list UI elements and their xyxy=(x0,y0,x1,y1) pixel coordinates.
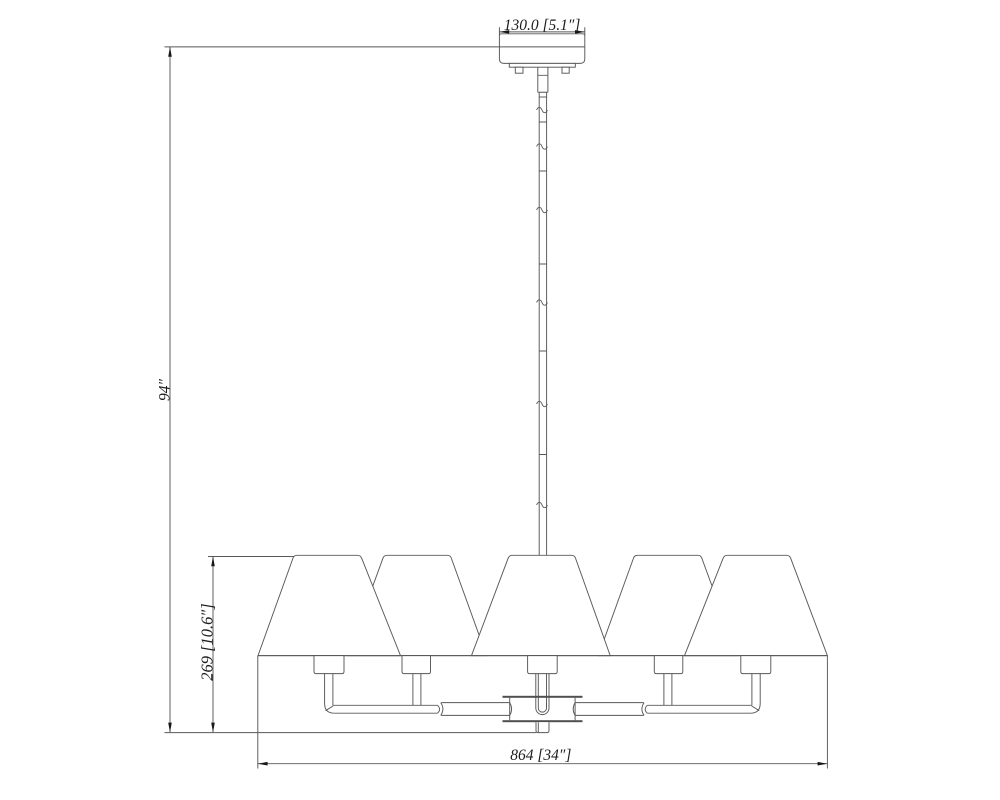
svg-text:94″: 94″ xyxy=(156,378,173,401)
svg-text:269 [10.6″]: 269 [10.6″] xyxy=(197,603,216,680)
svg-text:130.0 [5.1″]: 130.0 [5.1″] xyxy=(504,17,581,34)
svg-text:864 [34″]: 864 [34″] xyxy=(510,747,571,764)
